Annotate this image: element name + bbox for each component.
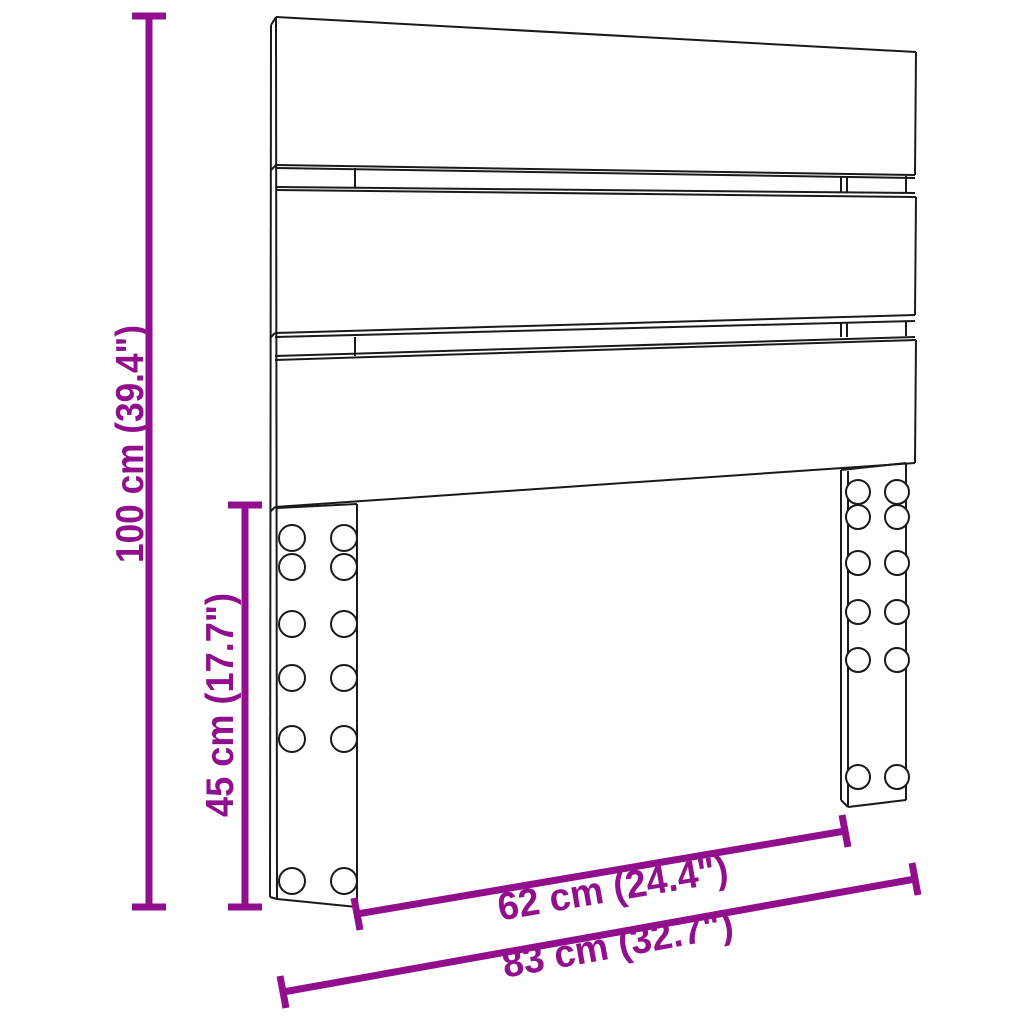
product-dimension-diagram: 100 cm (39.4") 45 cm (17.7") 62 cm (24.4…: [0, 0, 1024, 1024]
dimension-annotations: [132, 16, 918, 1008]
plank-top: [276, 17, 916, 175]
left-edge-face: [270, 17, 277, 899]
diagram-canvas: 100 cm (39.4") 45 cm (17.7") 62 cm (24.4…: [0, 0, 1024, 1024]
dimension-labels: 100 cm (39.4") 45 cm (17.7") 62 cm (24.4…: [109, 325, 737, 987]
gap-upper: [276, 168, 915, 193]
total-height-dimension-label: 100 cm (39.4"): [109, 325, 152, 563]
plank-middle: [275, 190, 916, 333]
leg-height-dimension-label: 45 cm (17.7"): [199, 593, 242, 817]
headboard-drawing: [270, 17, 916, 907]
right-leg-screw-holes: [846, 480, 909, 789]
plank-bottom: [275, 340, 916, 507]
left-leg-screw-holes: [279, 525, 357, 894]
